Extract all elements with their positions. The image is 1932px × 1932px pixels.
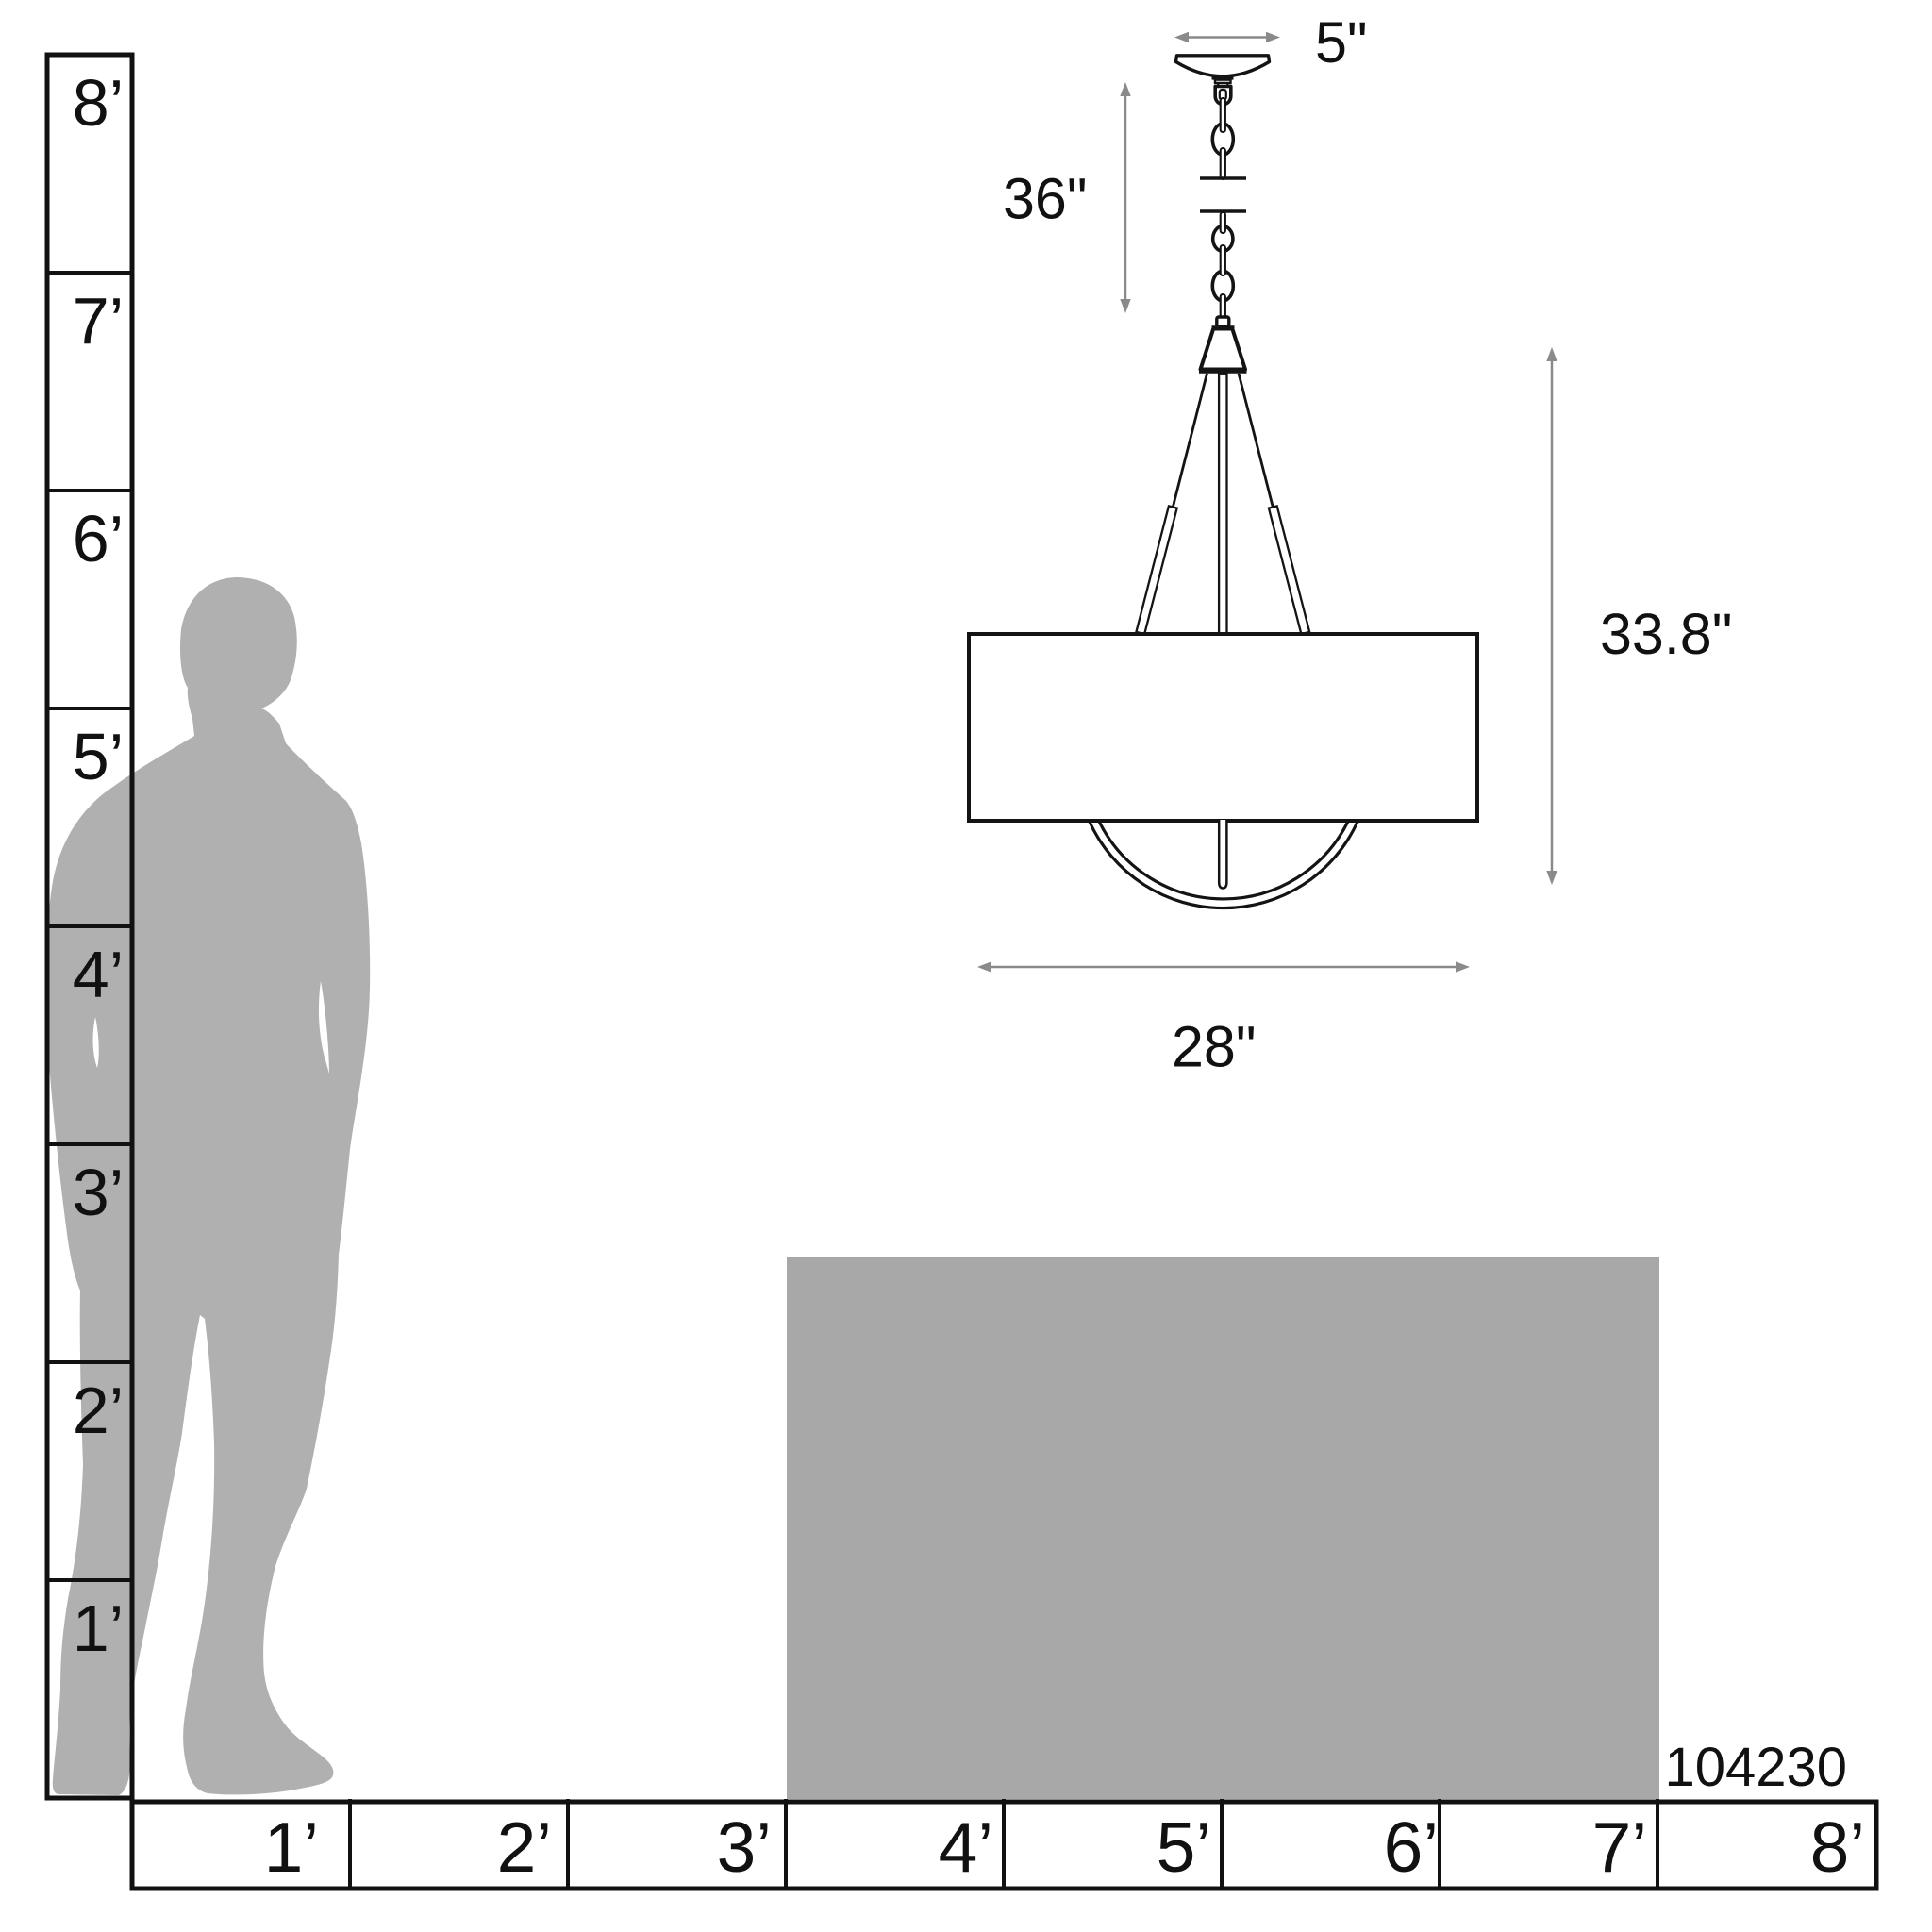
svg-text:6’: 6’ xyxy=(1384,1807,1439,1887)
svg-text:36": 36" xyxy=(1003,167,1088,231)
svg-text:2’: 2’ xyxy=(73,1374,124,1447)
svg-text:1’: 1’ xyxy=(264,1807,319,1887)
svg-text:33.8": 33.8" xyxy=(1600,602,1732,666)
svg-text:28": 28" xyxy=(1172,1015,1257,1079)
svg-text:2’: 2’ xyxy=(497,1807,552,1887)
svg-text:6’: 6’ xyxy=(73,502,124,575)
svg-text:3’: 3’ xyxy=(73,1156,124,1229)
svg-text:4’: 4’ xyxy=(73,938,124,1011)
svg-text:5’: 5’ xyxy=(73,720,124,793)
svg-text:4’: 4’ xyxy=(939,1807,993,1887)
svg-text:8’: 8’ xyxy=(73,66,124,140)
svg-text:1’: 1’ xyxy=(73,1591,124,1665)
svg-text:104230: 104230 xyxy=(1664,1737,1847,1798)
svg-text:7’: 7’ xyxy=(73,284,124,358)
svg-text:5’: 5’ xyxy=(1157,1807,1211,1887)
svg-text:7’: 7’ xyxy=(1592,1807,1647,1887)
svg-text:5": 5" xyxy=(1315,10,1368,75)
svg-text:3’: 3’ xyxy=(717,1807,772,1887)
svg-text:8’: 8’ xyxy=(1810,1807,1865,1887)
